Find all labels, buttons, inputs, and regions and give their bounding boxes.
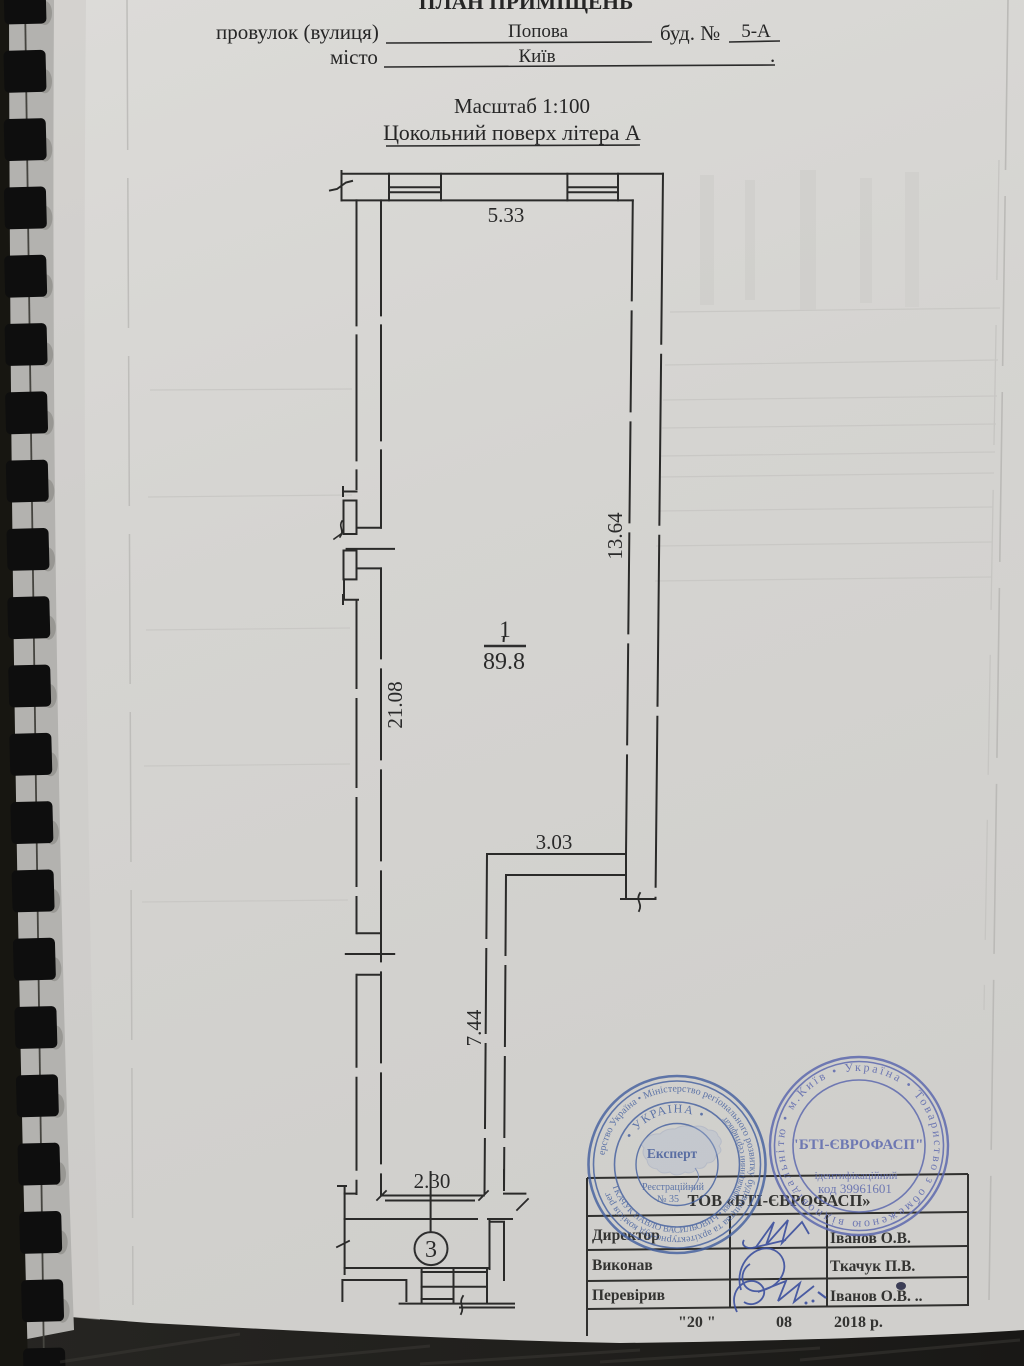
- svg-text:Цокольний поверх літера А: Цокольний поверх літера А: [383, 120, 641, 145]
- svg-text:Експерт: Експерт: [647, 1146, 698, 1161]
- svg-text:21.08: 21.08: [383, 681, 407, 728]
- svg-text:2018 р.: 2018 р.: [834, 1314, 883, 1331]
- svg-text:буд. №: буд. №: [660, 21, 720, 45]
- svg-text:89.8: 89.8: [483, 649, 525, 675]
- svg-text:Перевірив: Перевірив: [592, 1287, 665, 1304]
- svg-text:Іванов О.В. ..: Іванов О.В. ..: [830, 1288, 923, 1305]
- svg-text:місто: місто: [330, 45, 378, 69]
- svg-text:Ткачук П.В.: Ткачук П.В.: [830, 1258, 915, 1275]
- svg-text:провулок (вулиця): провулок (вулиця): [216, 20, 379, 44]
- svg-text:3: 3: [425, 1237, 437, 1263]
- svg-text:"БТІ-ЄВРОФАСП": "БТІ-ЄВРОФАСП": [791, 1137, 924, 1153]
- svg-text:Виконав: Виконав: [592, 1257, 653, 1274]
- svg-text:Реєстраційний: Реєстраційний: [642, 1182, 705, 1193]
- svg-text:Київ: Київ: [518, 46, 555, 67]
- svg-text:1: 1: [499, 617, 511, 642]
- svg-text:3.03: 3.03: [536, 830, 573, 854]
- svg-text:7.44: 7.44: [462, 1009, 486, 1046]
- svg-text:.: .: [770, 43, 775, 67]
- svg-text:5.33: 5.33: [488, 203, 525, 227]
- svg-text:№ 35: № 35: [657, 1194, 679, 1205]
- svg-text:5-А: 5-А: [741, 21, 771, 42]
- svg-text:"20 ": "20 ": [678, 1314, 716, 1331]
- svg-text:Масштаб 1:100: Масштаб 1:100: [454, 94, 590, 118]
- svg-text:13.64: 13.64: [603, 512, 627, 560]
- svg-text:код 39961601: код 39961601: [818, 1181, 892, 1196]
- svg-text:Попова: Попова: [508, 21, 569, 42]
- svg-text:ПЛАН ПРИМІЩЕНЬ: ПЛАН ПРИМІЩЕНЬ: [419, 0, 634, 14]
- svg-text:2.30: 2.30: [414, 1169, 451, 1193]
- svg-text:08: 08: [776, 1314, 792, 1331]
